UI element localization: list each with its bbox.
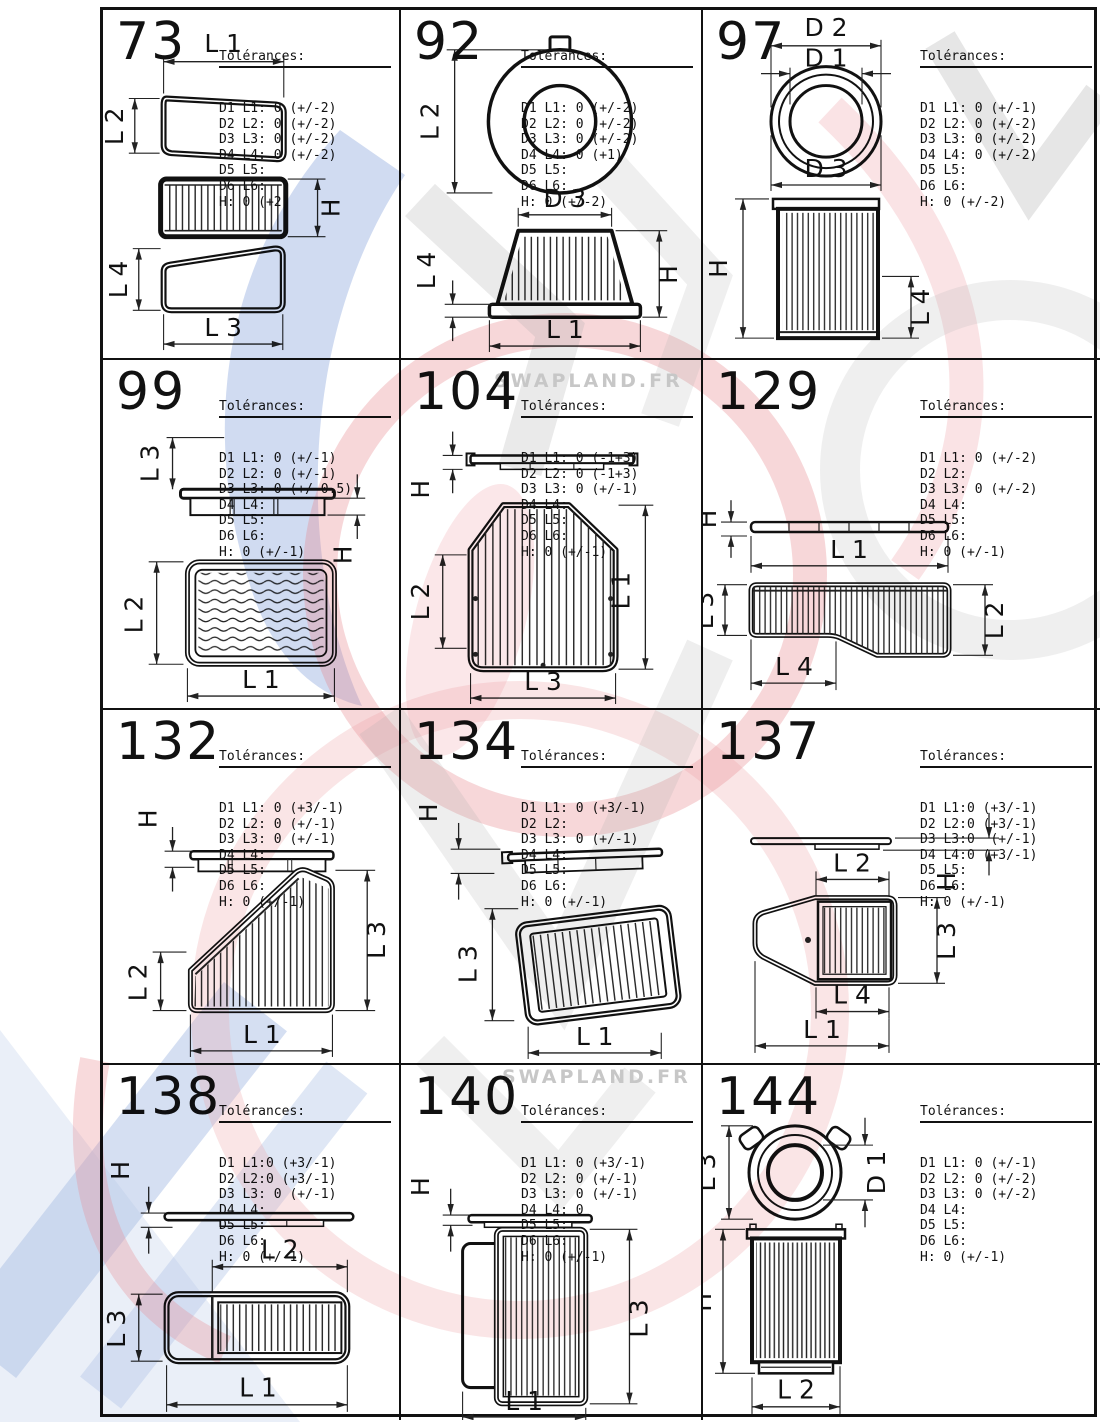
tolerance-row: D6 L6:: [219, 529, 391, 545]
dimension-l2: L 2: [406, 555, 467, 648]
dim-label: H: [703, 510, 722, 529]
dim-label: H: [406, 1177, 435, 1196]
dimension-l3: L 3: [471, 667, 616, 704]
tolerance-row: D3 L3: 0 (+/-0.5): [219, 482, 391, 498]
tolerance-row: D1 L1: 0 (+/-2): [521, 101, 693, 117]
dimension-l1: L 1: [528, 1022, 661, 1059]
dim-label: L 3: [703, 1153, 721, 1191]
tolerance-row: D2 L2:0 (+3/-1): [920, 817, 1092, 833]
tolerance-row: D4 L4: 0 (+1): [521, 148, 693, 164]
tolerance-table: Tolérances: D1 L1: 0 (+/-1)D2 L2: 0 (+/-…: [219, 368, 391, 591]
dimension-l1: L 1: [489, 315, 640, 352]
tolerance-row: D1 L1:0 (+3/-1): [920, 801, 1092, 817]
tolerance-row: D6 L6:: [219, 879, 391, 895]
tolerance-row: D4 L4:: [521, 848, 693, 864]
tolerance-row: D2 L2: 0 (+/-1): [521, 1172, 693, 1188]
tolerance-row: D5 L5:: [920, 163, 1092, 179]
tolerance-rows: D1 L1: 0 (+/-1)D2 L2: 0 (+/-1)D3 L3: 0 (…: [219, 451, 391, 560]
tolerance-row: H: 0 (+/-2): [521, 195, 693, 211]
tolerance-table: Tolérances: D1 L1: 0 (+/-1)D2 L2: 0 (+/-…: [920, 1073, 1092, 1296]
dim-label: H: [414, 803, 443, 822]
tolerance-row: D1 L1: 0 (-1+3): [521, 451, 693, 467]
tolerance-table: Tolérances: D1 L1: 0 (-1+3)D2 L2: 0 (-1+…: [521, 368, 693, 591]
dimension-l2: L 2: [816, 848, 889, 897]
tolerance-row: D6 L6:: [521, 1234, 693, 1250]
tolerance-table: Tolérances: D1 L1: 0 (+/-2)D2 L2: 0 (+/-…: [521, 18, 693, 241]
cell-104: 104 Tolérances: D1 L1: 0 (-1+3)D2 L2: 0 …: [401, 360, 703, 710]
tolerance-row: D2 L2: 0 (-1+3): [521, 467, 693, 483]
dimension-l4: L 4: [751, 639, 836, 690]
dim-label: L 1: [546, 315, 584, 344]
tolerance-title: Tolérances:: [920, 49, 1092, 68]
tolerance-row: D3 L3: 0 (+/-1): [521, 482, 693, 498]
dim-label: L 2: [406, 583, 435, 621]
dim-label: L 3: [136, 445, 165, 483]
tolerance-row: D3 L3: 0 (+/-1): [521, 832, 693, 848]
dimension-l3: L 3: [136, 438, 225, 490]
tolerance-table: Tolérances: D1 L1: 0 (+/-2)D2 L2: 0 (+/-…: [219, 18, 391, 241]
dim-label: L 2: [103, 108, 129, 146]
dimension-l2: L 2: [124, 952, 187, 1010]
dim-label: L 4: [906, 289, 935, 327]
tolerance-row: D6 L6:: [920, 179, 1092, 195]
tolerance-row: D4 L4: 0 (+/-2): [920, 148, 1092, 164]
dimension-l3: L 3: [103, 1294, 163, 1361]
dim-label: L 3: [625, 1299, 654, 1337]
tolerance-rows: D1 L1: 0 (+/-2)D2 L2: 0 (+/-2)D3 L3: 0 (…: [219, 101, 391, 210]
dim-label: L 3: [103, 1310, 131, 1348]
tolerance-row: H: 0 (+/-1): [521, 545, 693, 561]
tolerance-row: D3 L3: 0 (+/-2): [920, 132, 1092, 148]
dimension-l3: L 3: [454, 909, 519, 1021]
cell-97: 97 Tolérances: D1 L1: 0 (+/-1)D2 L2: 0 (…: [703, 10, 1100, 360]
dim-label: L 2: [120, 596, 149, 634]
tolerance-row: H: 0 (+/-1): [521, 895, 693, 911]
tolerance-title: Tolérances:: [521, 399, 693, 418]
dim-label: H: [406, 480, 435, 499]
tolerance-row: D5 L5:: [920, 1218, 1092, 1234]
tolerance-row: D1 L1: 0 (+/-2): [920, 451, 1092, 467]
tolerance-table: Tolérances: D1 L1: 0 (+3/-1)D2 L2:D3 L3:…: [521, 718, 693, 941]
cell-144: 144 Tolérances: D1 L1: 0 (+/-1)D2 L2: 0 …: [703, 1065, 1100, 1420]
part-number: 140: [414, 1071, 519, 1123]
tolerance-row: D6 L6:: [521, 879, 693, 895]
part-number: 134: [414, 716, 519, 768]
dim-label: L 2: [980, 602, 1009, 640]
dim-label: L 2: [833, 848, 871, 877]
tolerance-row: D4 L4:: [521, 498, 693, 514]
tolerance-row: H: 0 (+/-1): [219, 895, 391, 911]
tolerance-table: Tolérances: D1 L1: 0 (+/-1)D2 L2: 0 (+/-…: [920, 18, 1092, 241]
tolerance-row: D3 L3: 0 (+/-2): [920, 482, 1092, 498]
tolerance-rows: D1 L1: 0 (+/-1)D2 L2: 0 (+/-2)D3 L3: 0 (…: [920, 1156, 1092, 1265]
dim-label: L 1: [243, 1020, 281, 1049]
dim-label: H: [106, 1161, 135, 1180]
tolerance-row: D3 L3: 0 (+/-1): [219, 832, 391, 848]
dimension-l2: L 2: [103, 98, 160, 153]
dim-label: D 1: [862, 1151, 891, 1195]
tolerance-row: D5 L5:: [521, 863, 693, 879]
filter-side-view: [747, 1224, 845, 1373]
dimension-h: H: [704, 199, 774, 338]
dim-label: L 3: [524, 667, 562, 696]
tolerance-title: Tolérances:: [521, 49, 693, 68]
tolerance-row: D2 L2: 0 (+/-2): [521, 117, 693, 133]
tolerance-title: Tolérances:: [920, 1104, 1092, 1123]
tolerance-row: D6 L6:: [920, 1234, 1092, 1250]
tolerance-table: Tolérances: D1 L1: 0 (+3/-1)D2 L2: 0 (+/…: [219, 718, 391, 941]
dimension-h: H: [414, 803, 500, 899]
tolerance-row: D5 L5:: [219, 1218, 391, 1234]
tolerance-rows: D1 L1: 0 (+3/-1)D2 L2: 0 (+/-1)D3 L3: 0 …: [219, 801, 391, 910]
tolerance-row: D5 L5:: [521, 163, 693, 179]
dim-label: L 3: [703, 592, 719, 630]
filter-panel-view: [755, 898, 895, 984]
part-number: 129: [716, 366, 821, 418]
tolerance-row: D2 L2:0 (+3/-1): [219, 1172, 391, 1188]
tolerance-row: H: 0 (+/-1): [920, 545, 1092, 561]
tolerance-row: D3 L3: 0 (+/-1): [219, 1187, 391, 1203]
dimension-l4: L 4: [412, 252, 494, 341]
tolerance-row: D3 L3:0 (+/-1): [920, 832, 1092, 848]
tolerance-row: D2 L2:: [920, 467, 1092, 483]
dim-label: H: [703, 1293, 717, 1312]
dimension-l4: L 4: [882, 276, 935, 338]
dim-label: D 2: [804, 13, 847, 42]
tolerance-row: D4 L4: 0 (+/-2): [219, 148, 391, 164]
tolerance-rows: D1 L1: 0 (+/-2)D2 L2:D3 L3: 0 (+/-2)D4 L…: [920, 451, 1092, 560]
dim-label: L 1: [576, 1022, 614, 1051]
dimension-h: H: [406, 1177, 472, 1251]
dimension-h: H: [703, 1229, 755, 1373]
tolerance-row: D6 L6:: [219, 179, 391, 195]
tolerance-row: D5 L5:: [219, 863, 391, 879]
dim-label: L 3: [204, 313, 242, 342]
part-number: 137: [716, 716, 821, 768]
part-number: 73: [116, 16, 186, 68]
dim-label: L 3: [454, 945, 483, 983]
tolerance-row: D2 L2: 0 (+/-2): [920, 117, 1092, 133]
tolerance-row: D4 L4: 0: [521, 1203, 693, 1219]
tolerance-table: Tolérances: D1 L1: 0 (+3/-1)D2 L2: 0 (+/…: [521, 1073, 693, 1296]
tolerance-row: D3 L3: 0 (+/-2): [521, 132, 693, 148]
dimension-h: H: [134, 809, 195, 891]
tolerance-row: D1 L1:0 (+3/-1): [219, 1156, 391, 1172]
dimension-l1: L 1: [751, 535, 948, 573]
cell-132: 132 Tolérances: D1 L1: 0 (+3/-1)D2 L2: 0…: [103, 710, 401, 1065]
dimension-l4: L 4: [104, 249, 161, 311]
tolerance-row: D1 L1: 0 (+3/-1): [219, 801, 391, 817]
dimension-l4: L 4: [816, 980, 889, 1018]
tolerance-rows: D1 L1: 0 (+3/-1)D2 L2:D3 L3: 0 (+/-1)D4 …: [521, 801, 693, 910]
dim-label: L 2: [777, 1376, 815, 1405]
tolerance-row: D6 L6:: [920, 879, 1092, 895]
tolerance-row: D4 L4:0 (+3/-1): [920, 848, 1092, 864]
tolerance-title: Tolérances:: [219, 1104, 391, 1123]
part-number: 144: [716, 1071, 821, 1123]
tolerance-row: D4 L4:: [219, 498, 391, 514]
tolerance-title: Tolérances:: [920, 749, 1092, 768]
cell-92: 92 Tolérances: D1 L1: 0 (+/-2)D2 L2: 0 (…: [401, 10, 703, 360]
tolerance-row: D4 L4:: [920, 498, 1092, 514]
cell-140: 140 Tolérances: D1 L1: 0 (+3/-1)D2 L2: 0…: [401, 1065, 703, 1420]
tolerance-row: D5 L5:: [219, 163, 391, 179]
dim-label: H: [134, 809, 163, 828]
part-number: 132: [116, 716, 221, 768]
dimension-h: H: [703, 500, 747, 558]
tolerance-rows: D1 L1: 0 (-1+3)D2 L2: 0 (-1+3)D3 L3: 0 (…: [521, 451, 693, 560]
dim-label: L 2: [416, 103, 445, 141]
tolerance-row: D3 L3: 0 (+/-1): [521, 1187, 693, 1203]
tolerance-title: Tolérances:: [521, 749, 693, 768]
dim-label: L 1: [242, 665, 280, 694]
tolerance-row: D2 L2: 0 (+/-2): [920, 1172, 1092, 1188]
tolerance-row: D2 L2: 0 (+/-1): [219, 817, 391, 833]
tolerance-row: H: 0 (+/-1): [521, 1250, 693, 1266]
cell-129: 129 Tolérances: D1 L1: 0 (+/-2)D2 L2:D3 …: [703, 360, 1100, 710]
tolerance-row: D1 L1: 0 (+/-1): [219, 451, 391, 467]
tolerance-row: D4 L4:: [219, 848, 391, 864]
tolerance-table: Tolérances: D1 L1: 0 (+/-2)D2 L2:D3 L3: …: [920, 368, 1092, 591]
tolerance-row: D3 L3: 0 (+/-2): [920, 1187, 1092, 1203]
cell-138: 138 Tolérances: D1 L1:0 (+3/-1)D2 L2:0 (…: [103, 1065, 401, 1420]
filter-side-view: [773, 199, 879, 338]
tolerance-row: D2 L2: 0 (+/-2): [219, 117, 391, 133]
tolerance-row: D5 L5:: [920, 863, 1092, 879]
filter-panel-view: [167, 1294, 348, 1361]
filter-top-view: [738, 1125, 852, 1219]
tolerance-row: H: 0 (+/-2): [920, 195, 1092, 211]
tolerance-row: D6 L6:: [521, 179, 693, 195]
dim-label: L 4: [412, 252, 441, 290]
dimension-l1: L 1: [190, 1015, 332, 1057]
tolerance-row: H: 0 (+2): [219, 195, 391, 211]
tolerance-rows: D1 L1: 0 (+/-2)D2 L2: 0 (+/-2)D3 L3: 0 (…: [521, 101, 693, 210]
tolerance-row: H: 0 (+/-1): [219, 545, 391, 561]
dimension-l1: L 1: [167, 1365, 348, 1412]
tolerance-row: H: 0 (+/-1): [920, 895, 1092, 911]
part-number: 99: [116, 366, 186, 418]
dim-label: H: [704, 259, 733, 278]
tolerance-row: D6 L6:: [920, 529, 1092, 545]
tolerance-row: D6 L6:: [521, 529, 693, 545]
tolerance-row: D4 L4:: [920, 1203, 1092, 1219]
part-number: 104: [414, 366, 519, 418]
tolerance-row: D5 L5:: [920, 513, 1092, 529]
dimension-l2: L 2: [120, 562, 184, 664]
tolerance-row: H: 0 (+/-1): [219, 1250, 391, 1266]
tolerance-title: Tolérances:: [219, 49, 391, 68]
tolerance-title: Tolérances:: [219, 399, 391, 418]
tolerance-title: Tolérances:: [521, 1104, 693, 1123]
filter-panel-view: [751, 585, 949, 656]
tolerance-title: Tolérances:: [219, 749, 391, 768]
filter-spec-sheet: 73 Tolérances: D1 L1: 0 (+/-2)D2 L2: 0 (…: [100, 7, 1097, 1417]
dim-label: H: [654, 265, 683, 284]
part-number: 92: [414, 16, 484, 68]
dim-label: L 1: [830, 535, 868, 564]
tolerance-row: H: 0 (+/-1): [920, 1250, 1092, 1266]
tolerance-row: D4 L4:: [219, 1203, 391, 1219]
dim-label: L 4: [104, 261, 133, 299]
tolerance-row: D1 L1: 0 (+/-1): [920, 101, 1092, 117]
tolerance-row: D2 L2: 0 (+/-1): [219, 467, 391, 483]
dimension-l3: L 3: [703, 585, 747, 636]
filter-cone-view: [489, 231, 640, 318]
tolerance-row: D5 L5:: [219, 513, 391, 529]
dim-label: L 4: [833, 980, 871, 1009]
dim-label: D 1: [804, 44, 847, 73]
cell-134: 134 Tolérances: D1 L1: 0 (+3/-1)D2 L2:D3…: [401, 710, 703, 1065]
cell-73: 73 Tolérances: D1 L1: 0 (+/-2)D2 L2: 0 (…: [103, 10, 401, 360]
part-number: 138: [116, 1071, 221, 1123]
tolerance-row: D2 L2:: [521, 817, 693, 833]
dim-label: L 1: [239, 1373, 277, 1402]
tolerance-rows: D1 L1:0 (+3/-1)D2 L2:0 (+3/-1)D3 L3:0 (+…: [920, 801, 1092, 910]
tolerance-row: D5 L5:: [521, 513, 693, 529]
tolerance-rows: D1 L1: 0 (+3/-1)D2 L2: 0 (+/-1)D3 L3: 0 …: [521, 1156, 693, 1265]
dimension-l1: L 1: [187, 665, 334, 702]
cell-137: 137 Tolérances: D1 L1:0 (+3/-1)D2 L2:0 (…: [703, 710, 1100, 1065]
tolerance-table: Tolérances: D1 L1:0 (+3/-1)D2 L2:0 (+3/-…: [219, 1073, 391, 1296]
dim-label: L 1: [803, 1015, 841, 1044]
tolerance-row: D1 L1: 0 (+3/-1): [521, 801, 693, 817]
dimension-l3: L 3: [164, 313, 283, 350]
cell-99: 99 Tolérances: D1 L1: 0 (+/-1)D2 L2: 0 (…: [103, 360, 401, 710]
dim-label: L 1: [505, 1387, 543, 1416]
tolerance-row: D3 L3: 0 (+/-2): [219, 132, 391, 148]
tolerance-row: D1 L1: 0 (+/-1): [920, 1156, 1092, 1172]
tolerance-row: D5 L5:: [521, 1218, 693, 1234]
tolerance-rows: D1 L1:0 (+3/-1)D2 L2:0 (+3/-1)D3 L3: 0 (…: [219, 1156, 391, 1265]
tolerance-rows: D1 L1: 0 (+/-1)D2 L2: 0 (+/-2)D3 L3: 0 (…: [920, 101, 1092, 210]
tolerance-row: D1 L1: 0 (+3/-1): [521, 1156, 693, 1172]
dim-label: D 3: [804, 154, 847, 183]
tolerance-table: Tolérances: D1 L1:0 (+3/-1)D2 L2:0 (+3/-…: [920, 718, 1092, 941]
dimension-l2: L 2: [953, 585, 1009, 656]
dim-label: L 4: [775, 652, 813, 681]
filter-bottom-view: [164, 249, 283, 311]
filter-side-view: [751, 522, 948, 532]
dim-label: L 2: [124, 963, 153, 1001]
tolerance-row: D6 L6:: [219, 1234, 391, 1250]
tolerance-title: Tolérances:: [920, 399, 1092, 418]
tolerance-row: D1 L1: 0 (+/-2): [219, 101, 391, 117]
part-number: 97: [716, 16, 786, 68]
dimension-h: H: [406, 432, 463, 499]
dimension-h: H: [106, 1161, 172, 1254]
